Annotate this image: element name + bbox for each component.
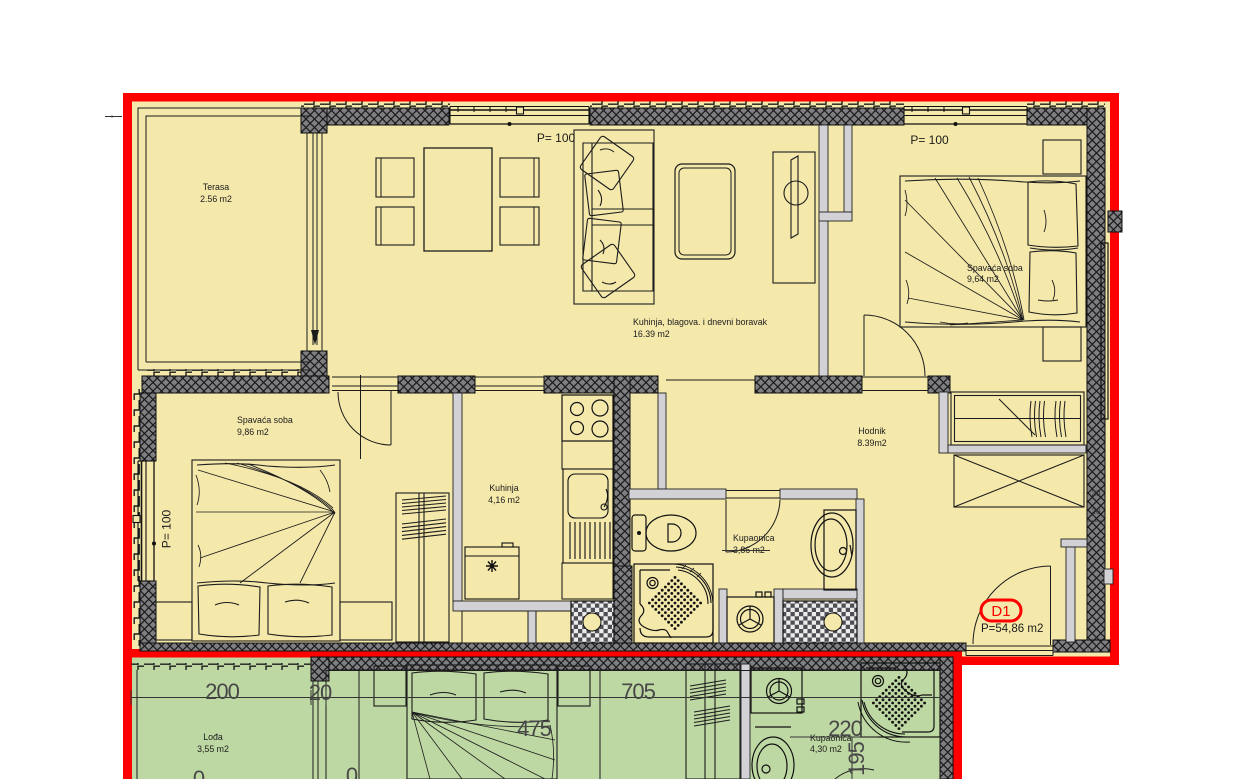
svg-text:8.39m2: 8.39m2 xyxy=(857,438,886,448)
svg-text:4,30 m2: 4,30 m2 xyxy=(810,744,842,754)
svg-text:Kupaonica: Kupaonica xyxy=(733,533,775,543)
svg-text:Kuhinja, blagova. i dnevni bor: Kuhinja, blagova. i dnevni boravak xyxy=(633,317,768,327)
svg-text:3,55 m2: 3,55 m2 xyxy=(197,744,229,754)
svg-text:0: 0 xyxy=(193,766,205,779)
svg-text:Spavaća soba: Spavaća soba xyxy=(237,415,293,425)
svg-text:Terasa: Terasa xyxy=(203,182,230,192)
svg-text:P= 100: P= 100 xyxy=(160,509,174,548)
svg-text:Hodnik: Hodnik xyxy=(858,426,886,436)
svg-text:9,86 m2: 9,86 m2 xyxy=(237,427,269,437)
svg-text:705: 705 xyxy=(621,679,655,704)
svg-text:20: 20 xyxy=(1092,489,1101,498)
svg-text:0: 0 xyxy=(346,763,358,779)
svg-text:D1: D1 xyxy=(991,603,1010,620)
svg-text:P=54,86 m2: P=54,86 m2 xyxy=(981,623,1043,635)
svg-text:200: 200 xyxy=(205,679,239,704)
svg-text:16.39 m2: 16.39 m2 xyxy=(633,329,670,339)
svg-text:Kuhinja: Kuhinja xyxy=(489,483,518,493)
svg-text:P= 100: P= 100 xyxy=(910,133,949,147)
svg-text:Lođa: Lođa xyxy=(203,732,223,742)
svg-text:P= 100: P= 100 xyxy=(537,131,576,145)
svg-text:475: 475 xyxy=(517,716,551,741)
svg-text:Spavaća soba: Spavaća soba xyxy=(967,263,1023,273)
svg-text:2.56 m2: 2.56 m2 xyxy=(200,194,232,204)
svg-text:20: 20 xyxy=(1092,507,1101,516)
svg-text:20: 20 xyxy=(309,680,332,705)
svg-text:4,16 m2: 4,16 m2 xyxy=(488,495,520,505)
svg-text:3,86 m2: 3,86 m2 xyxy=(733,545,765,555)
svg-text:195: 195 xyxy=(844,741,869,775)
svg-text:220: 220 xyxy=(828,716,862,741)
svg-text:9,64 m2: 9,64 m2 xyxy=(967,274,999,284)
